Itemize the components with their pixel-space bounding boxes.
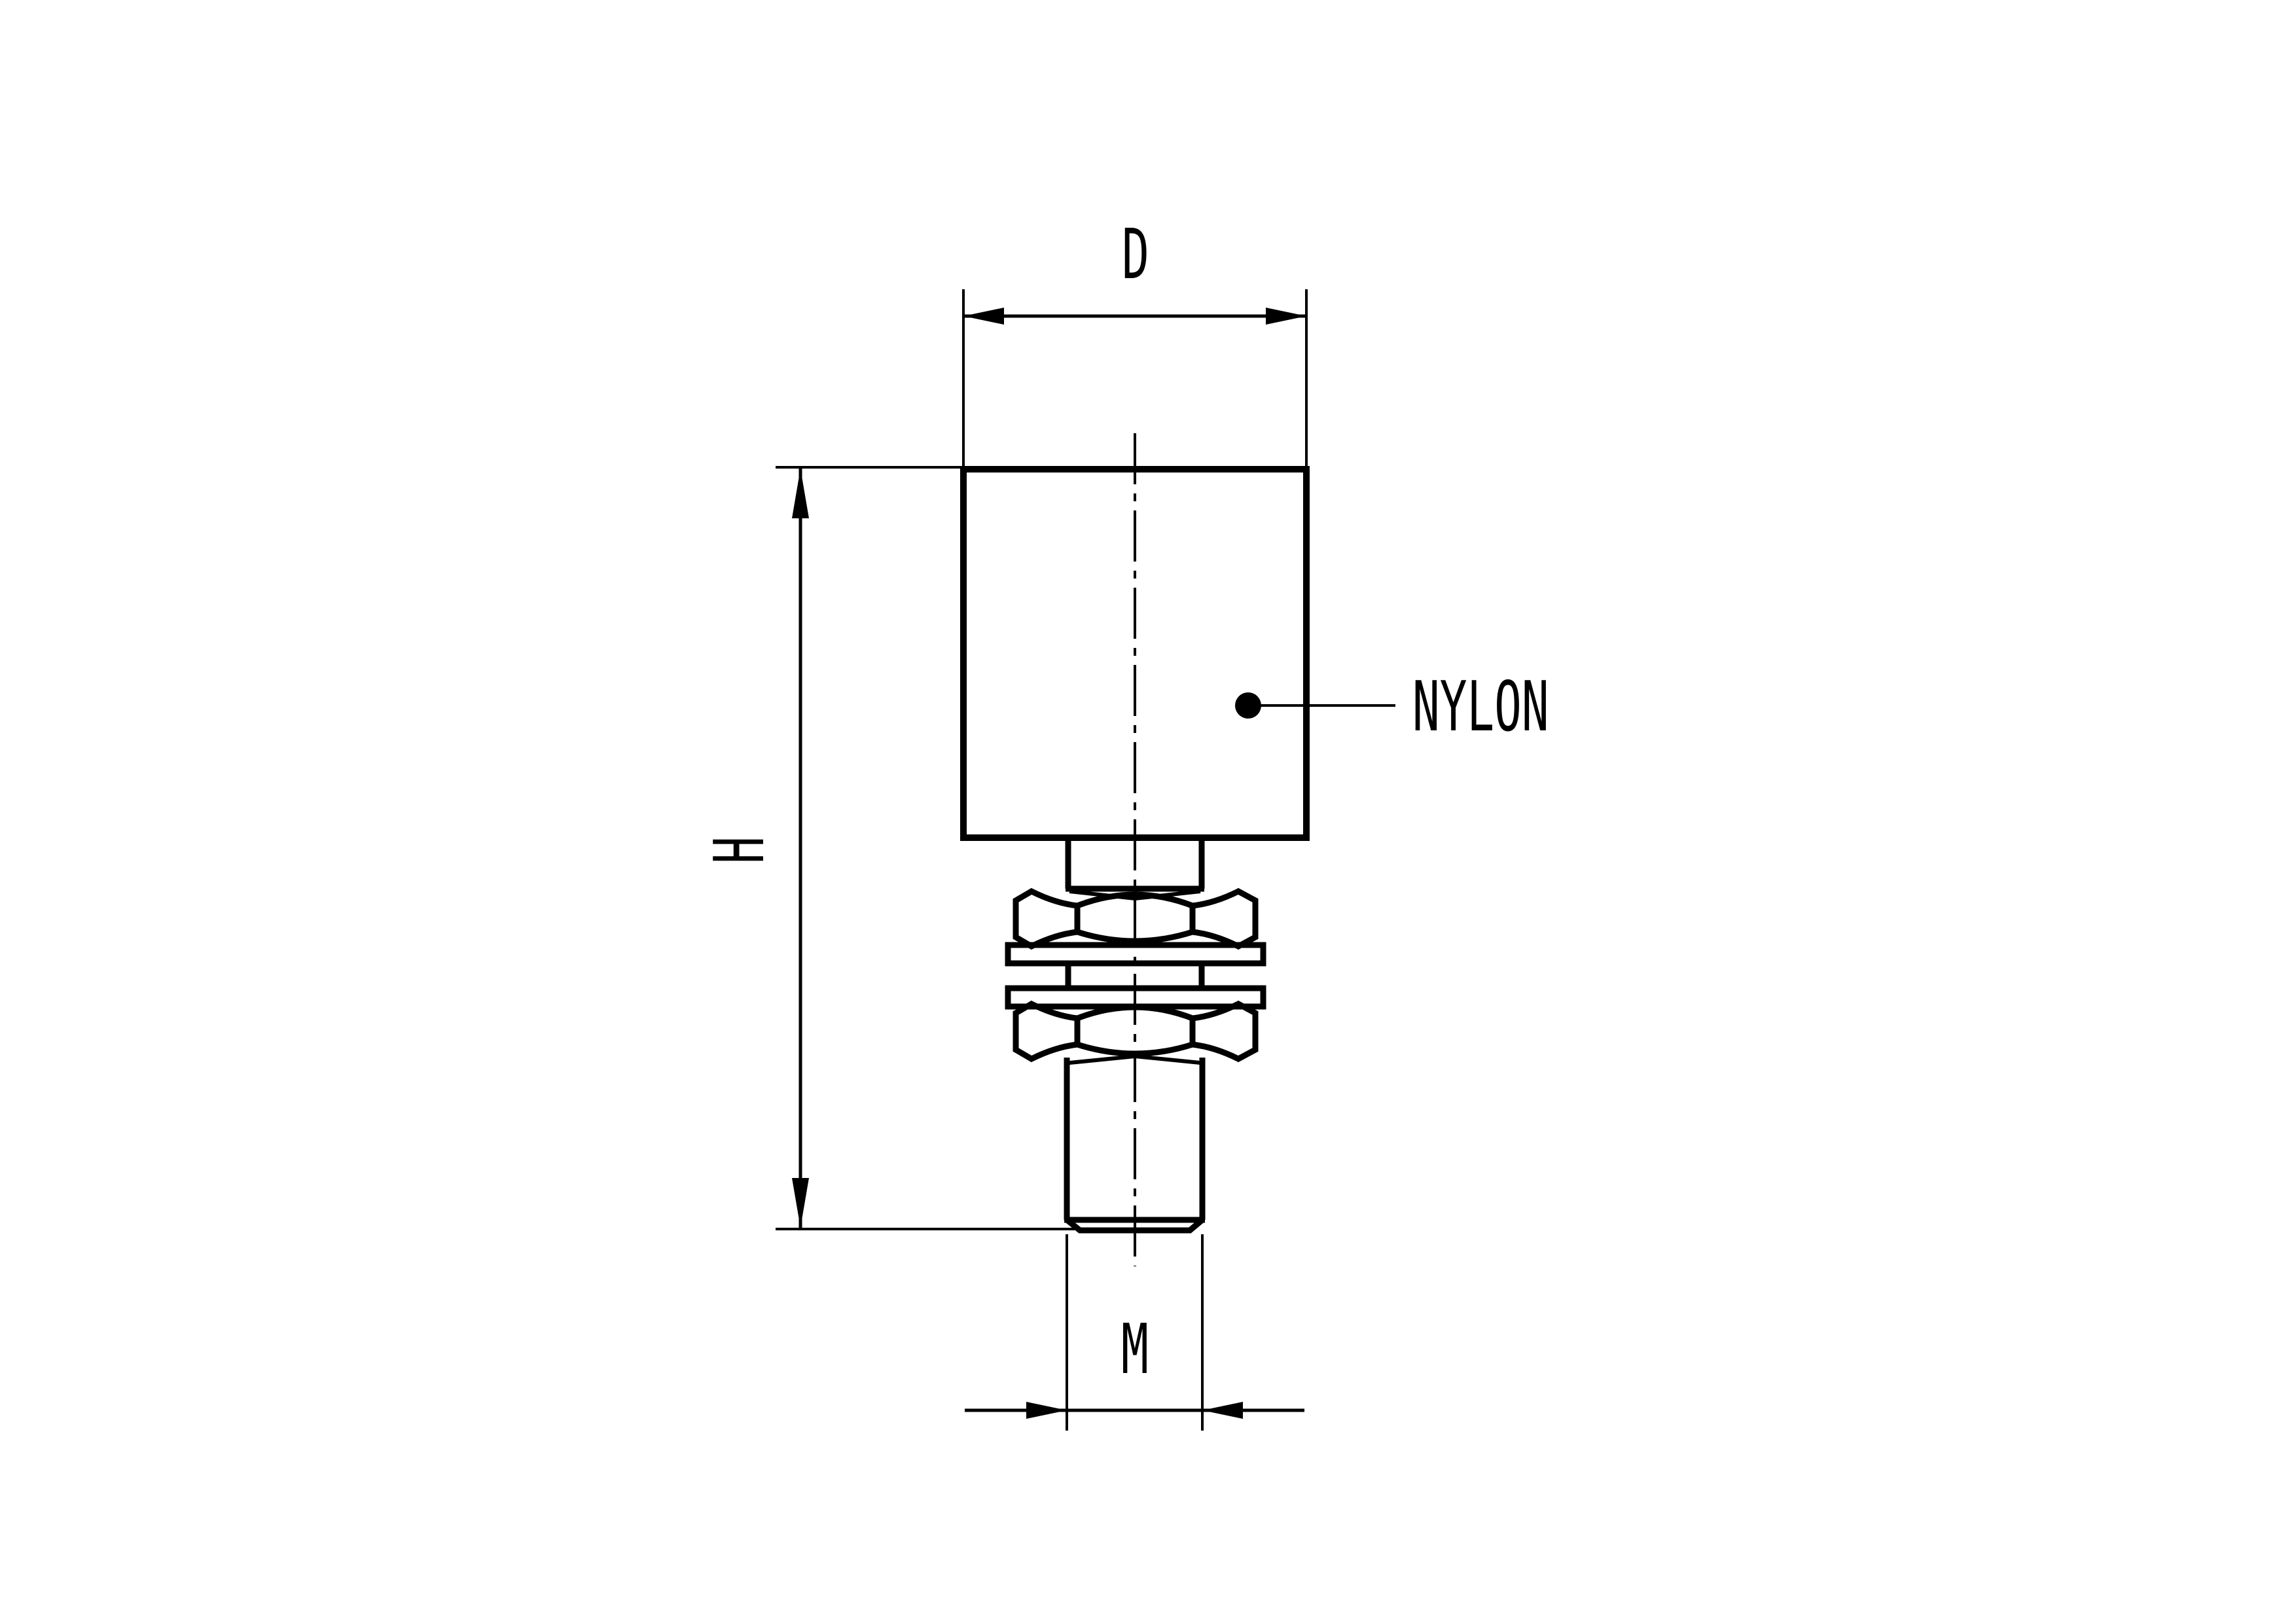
dim-label-d: D (1122, 214, 1149, 294)
arrow-m-left (1026, 1402, 1067, 1419)
arrow-d-right (1266, 308, 1306, 325)
dimension-m: M (965, 1234, 1304, 1431)
arrow-d-left (963, 308, 1004, 325)
material-label: NYLON (1412, 666, 1549, 747)
leader-dot (1235, 692, 1261, 719)
arrow-h-top (792, 469, 809, 518)
technical-drawing: D H M NYLON (0, 0, 2296, 1623)
dimension-d: D (963, 214, 1306, 466)
drawing-sheet: D H M NYLON (0, 0, 2296, 1623)
arrow-h-bottom (792, 1178, 809, 1228)
washer-upper (1008, 945, 1263, 963)
dim-label-m: M (1121, 1309, 1149, 1389)
part-view (963, 433, 1306, 1266)
dimension-h: H (699, 467, 1075, 1229)
material-callout: NYLON (1235, 666, 1549, 747)
dim-label-h: H (699, 836, 780, 864)
arrow-m-right (1202, 1402, 1243, 1419)
